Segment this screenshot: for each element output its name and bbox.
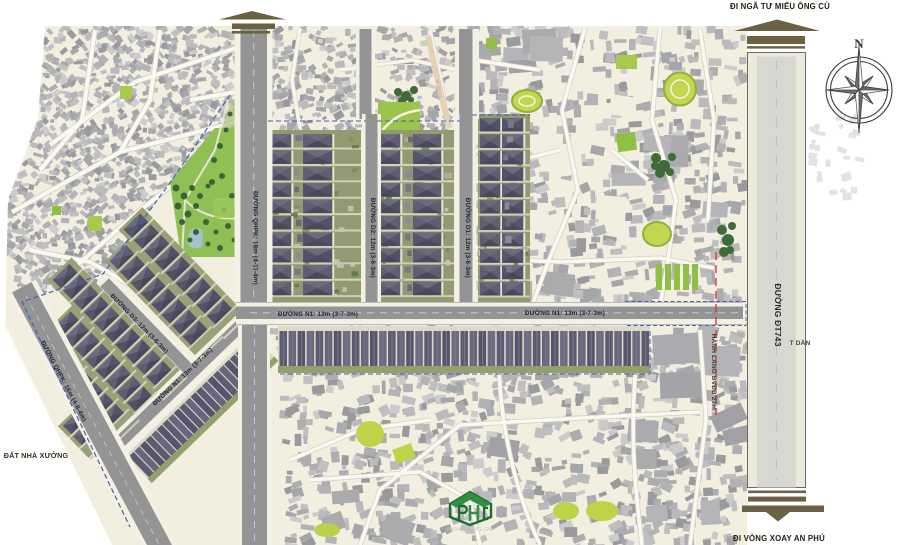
svg-text:PHAN HOANG GIA: PHAN HOANG GIA <box>447 527 494 533</box>
svg-text:ĐƯỜNG N1: 13m (3-7-3m): ĐƯỜNG N1: 13m (3-7-3m) <box>278 310 358 318</box>
svg-text:ĐƯỜNG QHPK: 18m (4-11-4m): ĐƯỜNG QHPK: 18m (4-11-4m) <box>252 191 260 285</box>
svg-text:ĐI NGÃ TƯ MIẾU ÔNG CÙ: ĐI NGÃ TƯ MIẾU ÔNG CÙ <box>730 1 830 11</box>
svg-text:ĐƯỜNG ĐT743: ĐƯỜNG ĐT743 <box>773 283 784 346</box>
svg-text:ĐƯỜNG D2: 12m (3-6-3m): ĐƯỜNG D2: 12m (3-6-3m) <box>369 198 377 278</box>
svg-text:ĐI VÒNG XOAY AN PHÚ: ĐI VÒNG XOAY AN PHÚ <box>733 534 825 543</box>
svg-text:ĐẤT NHÀ XƯỞNG: ĐẤT NHÀ XƯỞNG <box>4 450 69 460</box>
svg-text:ĐƯỜNG D1: 12m (3-6-3m): ĐƯỜNG D1: 12m (3-6-3m) <box>464 198 472 278</box>
svg-text:HÀNH LANG BVĐB 27m: HÀNH LANG BVĐB 27m <box>710 334 719 411</box>
svg-text:ĐƯỜNG N1: 13m (3-7-3m): ĐƯỜNG N1: 13m (3-7-3m) <box>525 309 605 317</box>
svg-text:N: N <box>854 36 864 51</box>
